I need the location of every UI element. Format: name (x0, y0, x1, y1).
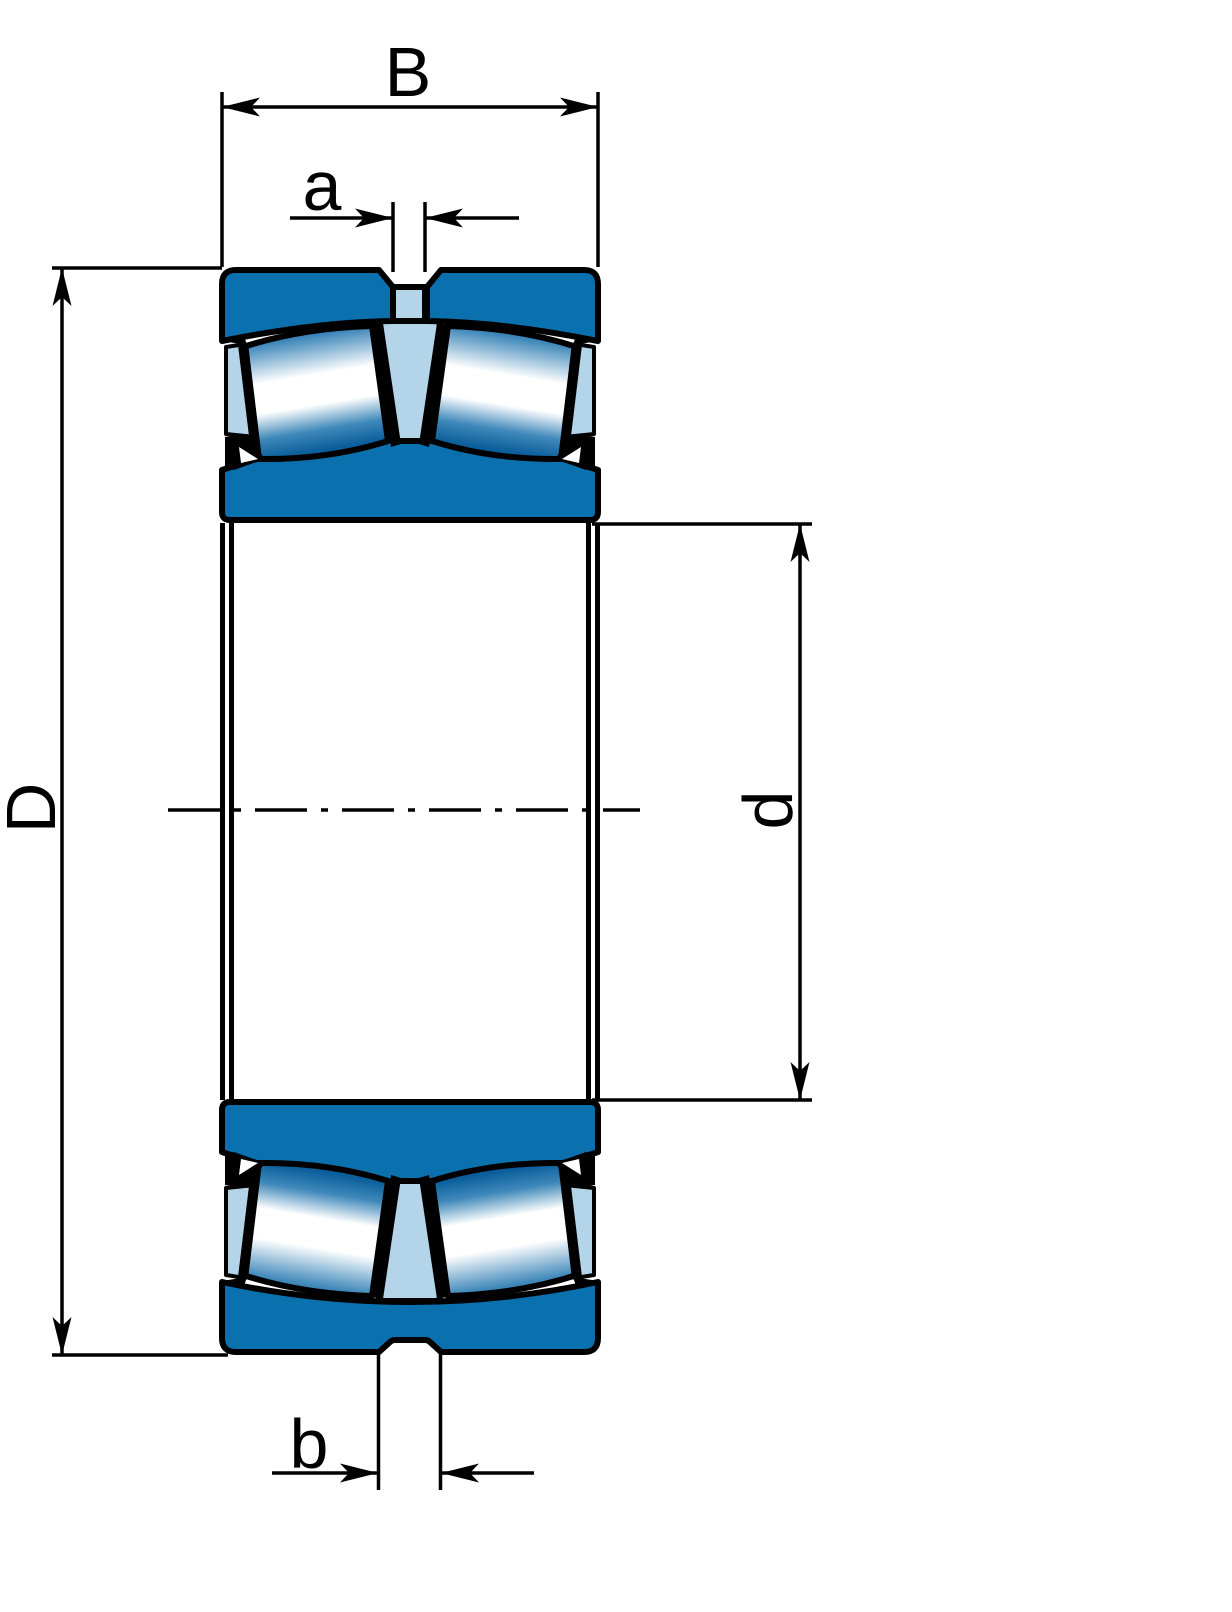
label-B: B (385, 33, 432, 111)
dimension-a: a (290, 147, 519, 272)
bearing-upper-half (222, 321, 598, 520)
dimension-B: B (222, 33, 598, 267)
spherical-roller-bearing-drawing: B a D d b (0, 0, 1232, 1612)
dimension-b: b (272, 1352, 534, 1490)
bearing-section-drawing: B a D d b (0, 0, 1232, 1612)
dimension-d: d (592, 524, 812, 1100)
label-b: b (290, 1405, 329, 1483)
bearing-lower-half (222, 1102, 598, 1301)
lubrication-hole (393, 287, 425, 321)
label-a: a (303, 147, 342, 225)
label-D: D (0, 783, 70, 834)
label-d: d (729, 791, 807, 830)
